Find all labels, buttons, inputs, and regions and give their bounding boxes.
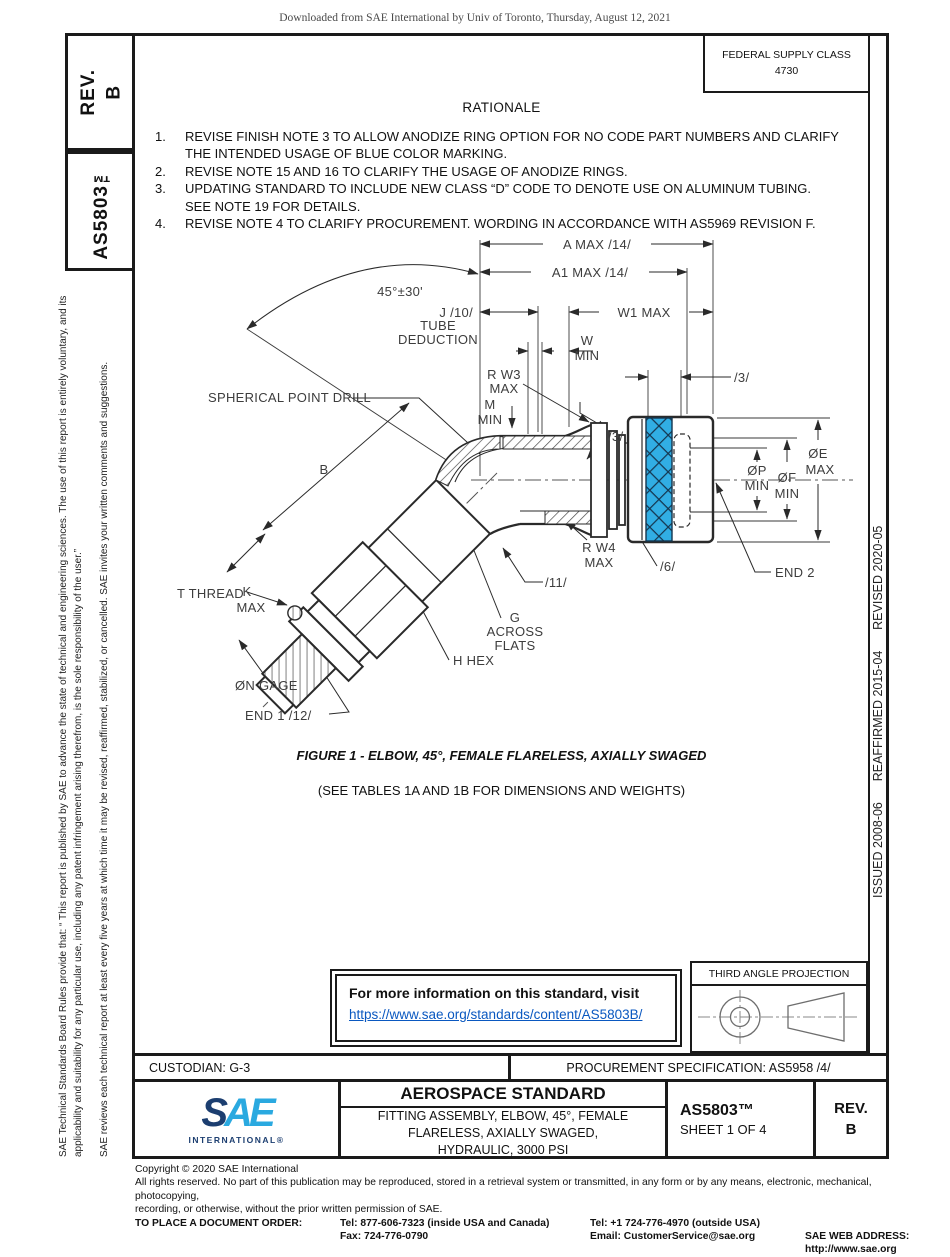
info-box: For more information on this standard, v… (330, 969, 682, 1047)
revision-history-text: ISSUED 2008-06 REAFFIRMED 2015-04 REVISE… (871, 36, 888, 1046)
dim-g-label: G (510, 610, 520, 625)
rationale-list: 1.REVISE FINISH NOTE 3 TO ALLOW ANODIZE … (155, 128, 857, 232)
doc-number-cell: AS5803™ SHEET 1 OF 4 (668, 1082, 813, 1156)
sae-logo: SAE INTERNATIONAL® (135, 1082, 338, 1156)
dim-b-label: B (320, 462, 329, 477)
dim-w-label: W (581, 333, 594, 348)
figure-caption: FIGURE 1 - ELBOW, 45°, FEMALE FLARELESS,… (135, 748, 868, 763)
standard-type-heading: AEROSPACE STANDARD (341, 1082, 665, 1108)
dim-g-flats-label: FLATS (495, 638, 536, 653)
title-block: SAE INTERNATIONAL® AEROSPACE STANDARD FI… (135, 1082, 886, 1156)
tube-label: TUBE (420, 318, 456, 333)
order-row-1: TO PLACE A DOCUMENT ORDER: Tel: 877-606-… (135, 1217, 925, 1230)
fsc-value: 4730 (775, 64, 798, 79)
dimension-lines (227, 244, 818, 572)
n-gage-label: ØN GAGE (235, 678, 298, 693)
federal-supply-class-box: FEDERAL SUPPLY CLASS 4730 (703, 36, 868, 93)
order-row-2: Fax: 724-776-0790 Email: CustomerService… (135, 1230, 925, 1257)
dim-w-min-label: MIN (575, 348, 600, 363)
dim-j-label: J /10/ (439, 305, 473, 320)
dim-rw3-label: R W3 (487, 367, 521, 382)
flag11-label: /11/ (545, 575, 567, 590)
sae-logo-text: SAE (201, 1093, 271, 1133)
sae-logo-subtext: INTERNATIONAL® (188, 1135, 284, 1145)
t-thread-label: T THREAD (177, 586, 244, 601)
procurement-cell: PROCUREMENT SPECIFICATION: AS5958 /4/ (508, 1056, 886, 1079)
dim-e-label: ØE (808, 446, 827, 461)
standard-link[interactable]: https://www.sae.org/standards/content/AS… (349, 1007, 642, 1022)
document-frame: ISSUED 2008-06 REAFFIRMED 2015-04 REVISE… (132, 33, 889, 1159)
flag3-mid-label: /3/ (608, 429, 623, 444)
dim-p-label: ØP (747, 463, 766, 478)
rationale-item: 3.UPDATING STANDARD TO INCLUDE NEW CLASS… (155, 180, 857, 215)
doc-number: AS5803™ (680, 1102, 813, 1120)
rationale-item: 2.REVISE NOTE 15 AND 16 TO CLARIFY THE U… (155, 163, 857, 180)
section-hatch-bend (436, 436, 500, 486)
dim-w1-label: W1 MAX (617, 305, 670, 320)
rationale-item: 4.REVISE NOTE 4 TO CLARIFY PROCUREMENT. … (155, 215, 857, 232)
rights-line-1: All rights reserved. No part of this pub… (135, 1176, 925, 1203)
standard-title: FITTING ASSEMBLY, ELBOW, 45°, FEMALE FLA… (341, 1108, 665, 1159)
rev-cell: REV. B (813, 1082, 886, 1156)
dim-p-min-label: MIN (745, 478, 770, 493)
section-hatch-bottom (545, 511, 591, 524)
doc-number-sidebar-label: AS5803™ (89, 163, 115, 260)
section-hatch-top (503, 436, 591, 449)
dim-m-min-label: MIN (478, 412, 503, 427)
rights-line-2: recording, or otherwise, without the pri… (135, 1203, 925, 1216)
angle-label: 45°±30' (377, 284, 423, 299)
legal-paragraph-1: SAE Technical Standards Board Rules prov… (56, 285, 86, 1157)
end1-label: END 1 /12/ (245, 708, 312, 723)
dim-f-label: ØF (778, 470, 797, 485)
projection-title: THIRD ANGLE PROJECTION (692, 963, 866, 986)
third-angle-projection-box: THIRD ANGLE PROJECTION (690, 961, 868, 1053)
legal-paragraph-2: SAE reviews each technical report at lea… (97, 285, 112, 1157)
deduction-label: DEDUCTION (398, 332, 478, 347)
dim-g-across-label: ACROSS (487, 624, 544, 639)
fsc-label: FEDERAL SUPPLY CLASS (722, 48, 851, 63)
revision-history-strip: ISSUED 2008-06 REAFFIRMED 2015-04 REVISE… (868, 36, 888, 1053)
dim-f-min-label: MIN (775, 486, 800, 501)
flag6-label: /6/ (660, 559, 675, 574)
dim-rw4-label: R W4 (582, 540, 616, 555)
info-box-text: For more information on this standard, v… (349, 985, 663, 1001)
swage-band (646, 418, 672, 541)
spherical-point-drill-label: SPHERICAL POINT DRILL (208, 390, 371, 405)
dim-k-max-label: MAX (236, 600, 265, 615)
custodian-row: CUSTODIAN: G-3 PROCUREMENT SPECIFICATION… (135, 1053, 886, 1082)
projection-symbol (692, 986, 866, 1048)
sae-legal-sidebar: SAE Technical Standards Board Rules prov… (56, 285, 128, 1157)
rev-sidebar-label: REV.B (76, 69, 127, 116)
end2-label: END 2 (775, 565, 815, 580)
copyright-block: Copyright © 2020 SAE International All r… (135, 1163, 925, 1257)
technical-drawing: A MAX /14/ A1 MAX /14/ 45°±30' W1 MAX TU… (135, 232, 868, 738)
dim-m-label: M (484, 397, 495, 412)
sheet-number: SHEET 1 OF 4 (680, 1122, 813, 1137)
dim-a1-label: A1 MAX /14/ (552, 265, 628, 280)
flag3-top-label: /3/ (734, 370, 749, 385)
copyright-line: Copyright © 2020 SAE International (135, 1163, 925, 1176)
dim-rw4-max-label: MAX (584, 555, 613, 570)
figure-note: (SEE TABLES 1A AND 1B FOR DIMENSIONS AND… (135, 783, 868, 798)
rationale-heading: RATIONALE (135, 100, 868, 115)
doc-number-sidebar-box: AS5803™ (65, 151, 138, 271)
rev-sidebar-box: REV.B (65, 33, 138, 151)
dim-e-max-label: MAX (805, 462, 834, 477)
custodian-cell: CUSTODIAN: G-3 (135, 1056, 508, 1079)
download-watermark: Downloaded from SAE International by Uni… (0, 12, 950, 24)
dim-rw3-max-label: MAX (489, 381, 518, 396)
dim-a-label: A MAX /14/ (563, 237, 631, 252)
rationale-item: 1.REVISE FINISH NOTE 3 TO ALLOW ANODIZE … (155, 128, 857, 163)
sleeve-assembly (628, 417, 713, 542)
h-hex-label: H HEX (453, 653, 494, 668)
